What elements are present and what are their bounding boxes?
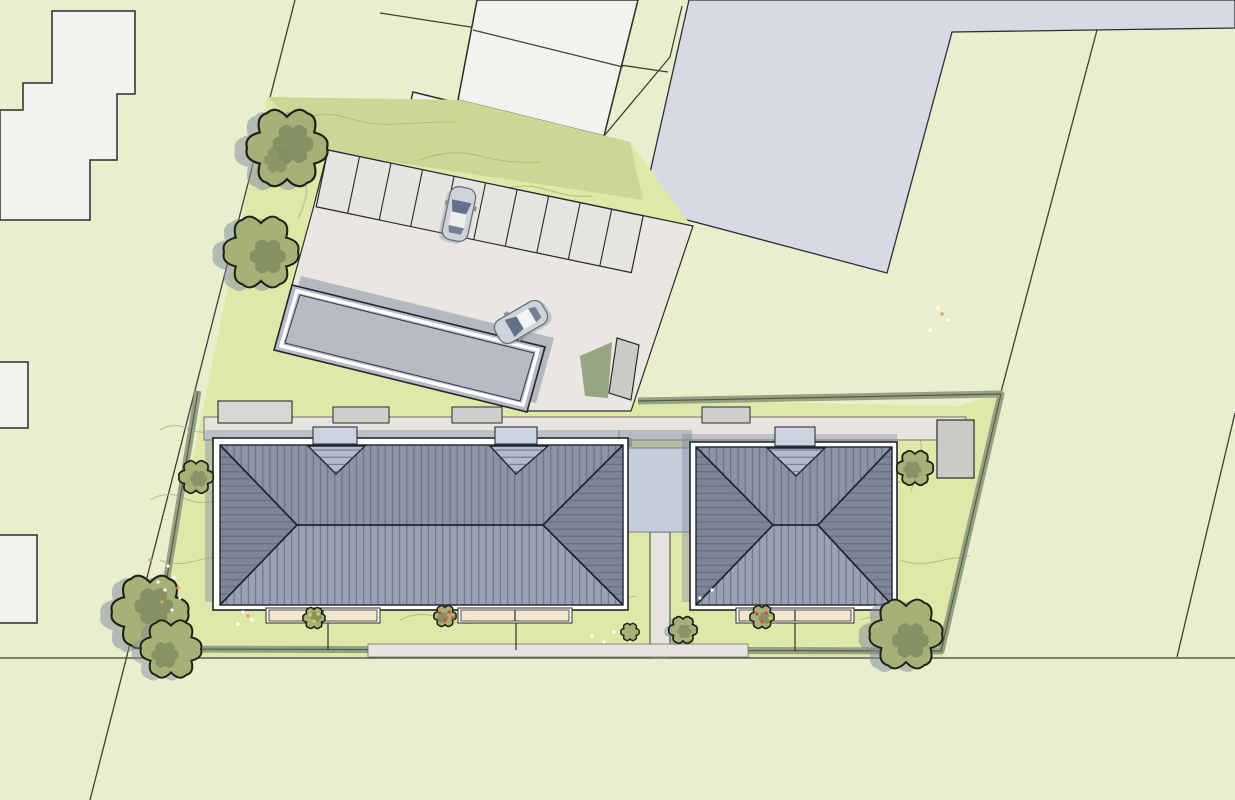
bin-store-3 — [452, 407, 502, 423]
entrance-porch-2 — [495, 427, 537, 444]
east-building — [682, 427, 897, 610]
bin-store-4 — [702, 407, 750, 423]
tree-icon — [234, 110, 327, 190]
building-connector — [618, 430, 692, 532]
tree-icon — [897, 451, 933, 485]
site-plan-drawing — [0, 0, 1235, 800]
connector-roof — [625, 448, 692, 532]
lower-footpath — [368, 644, 748, 657]
entrance-porch-3 — [775, 427, 815, 446]
path-between-gardens — [650, 532, 670, 658]
site-plan-canvas — [0, 0, 1235, 800]
entrance-porch-1 — [313, 427, 357, 444]
tree-icon — [132, 620, 202, 680]
tree-icon — [664, 617, 697, 645]
tree-icon — [212, 217, 298, 291]
west-building — [205, 427, 628, 610]
bin-store-2 — [333, 407, 389, 423]
tree-icon — [859, 600, 943, 672]
neighbor-building-west-upper — [0, 362, 28, 428]
bin-store-1 — [218, 401, 292, 423]
tree-icon — [179, 461, 213, 494]
west-building-roof — [220, 445, 623, 605]
shed-east-garden — [937, 420, 974, 478]
neighbor-building-west-lower — [0, 535, 37, 623]
